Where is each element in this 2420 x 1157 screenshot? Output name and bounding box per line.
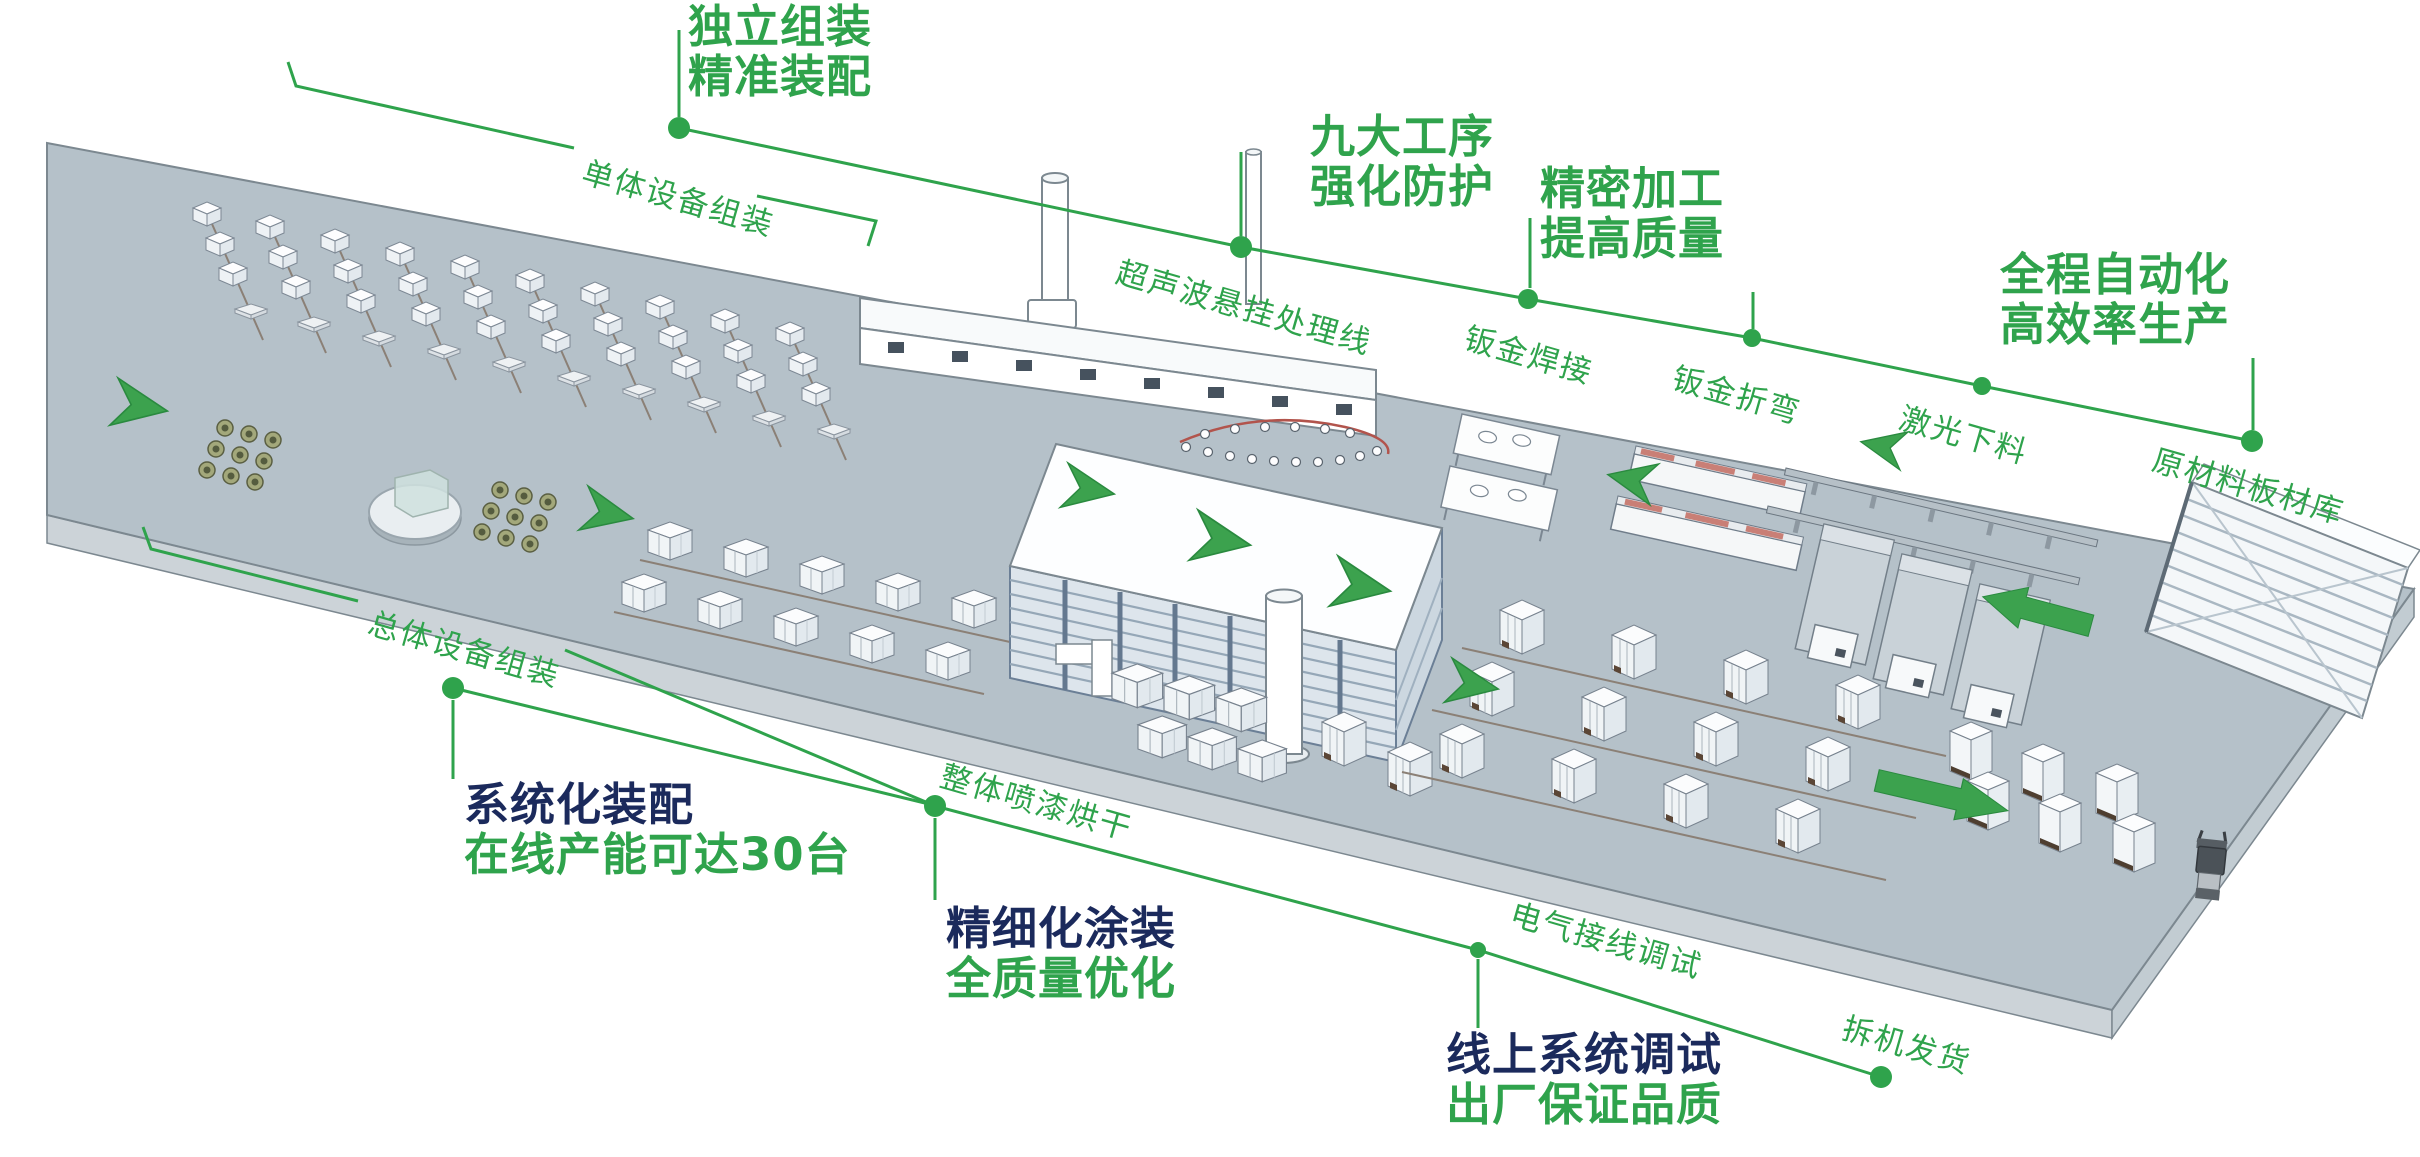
callout-systematic-assembly: 系统化装配 在线产能可达30台: [464, 780, 851, 880]
callout-fine-coating: 精细化涂装 全质量优化: [946, 904, 1176, 1004]
factory-process-diagram: 独立组装 精准装配 九大工序 强化防护 精密加工 提高质量 全程自动化 高效率生…: [0, 0, 2420, 1157]
callout-online-debug: 线上系统调试 出厂保证品质: [1446, 1030, 1722, 1130]
callout-line1: 系统化装配: [464, 780, 851, 830]
callout-line2: 精准装配: [688, 52, 872, 102]
callout-line1: 精细化涂装: [946, 904, 1176, 954]
callout-line2: 出厂保证品质: [1446, 1080, 1722, 1130]
callout-line2: 高效率生产: [2000, 300, 2230, 350]
callout-line1: 线上系统调试: [1446, 1030, 1722, 1080]
factory-illustration: [0, 0, 2420, 1157]
callout-line2: 全质量优化: [946, 954, 1176, 1004]
callout-line2: 强化防护: [1310, 162, 1494, 212]
callout-line1: 全程自动化: [2000, 250, 2230, 300]
callout-line2: 提高质量: [1540, 214, 1724, 264]
callout-line2: 在线产能可达30台: [464, 830, 851, 880]
callout-line1: 独立组装: [688, 2, 872, 52]
callout-independent-assembly: 独立组装 精准装配: [688, 2, 872, 102]
callout-line1: 九大工序: [1310, 112, 1494, 162]
callout-nine-processes: 九大工序 强化防护: [1310, 112, 1494, 212]
callout-line1: 精密加工: [1540, 164, 1724, 214]
callout-full-automation: 全程自动化 高效率生产: [2000, 250, 2230, 350]
callout-precision-machining: 精密加工 提高质量: [1540, 164, 1724, 264]
